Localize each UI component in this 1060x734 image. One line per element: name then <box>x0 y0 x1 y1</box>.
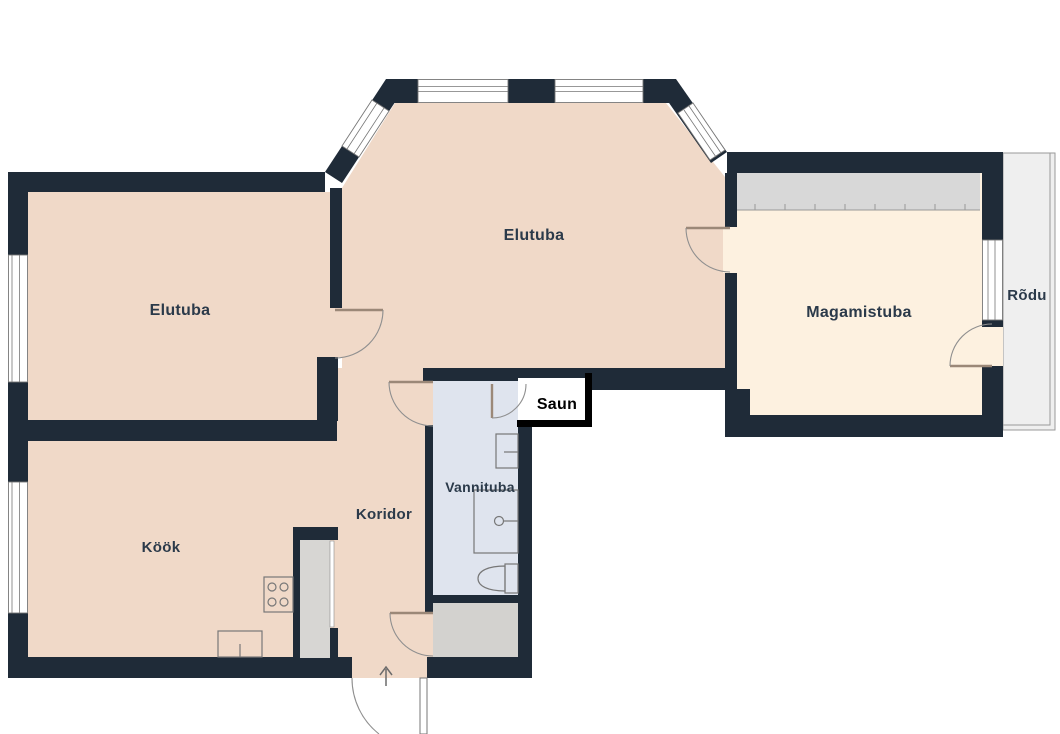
room-label-corridor: Koridor <box>356 506 412 523</box>
sauna-wall-right <box>585 373 592 427</box>
window-icon <box>418 80 508 103</box>
window-icon <box>983 240 1003 320</box>
sauna-wall-bottom <box>517 420 592 427</box>
window-icon <box>9 255 28 382</box>
room-label-living-left: Elutuba <box>150 302 211 319</box>
room-label-living-main: Elutuba <box>504 227 565 244</box>
window-icon <box>9 482 28 613</box>
room-label-balcony: Rõdu <box>1007 287 1047 304</box>
room-label-bathroom: Vannituba <box>445 479 515 495</box>
entrance-door-icon <box>352 678 427 734</box>
floor-plan-canvas: Elutuba Elutuba Magamistuba Rõdu Saun Va… <box>0 0 1060 734</box>
room-label-sauna: Saun <box>537 396 577 413</box>
vent-shaft-icon <box>300 540 334 658</box>
window-icon <box>555 80 643 103</box>
wardrobe-icon <box>737 173 980 210</box>
floor-plan-page: Elutuba Elutuba Magamistuba Rõdu Saun Va… <box>0 0 1060 734</box>
room-kitchen-floor <box>28 441 337 657</box>
entrance-threshold-floor <box>352 657 427 678</box>
room-label-kitchen: Köök <box>142 539 181 556</box>
room-storage-floor <box>433 603 520 657</box>
room-label-bedroom: Magamistuba <box>806 304 912 321</box>
